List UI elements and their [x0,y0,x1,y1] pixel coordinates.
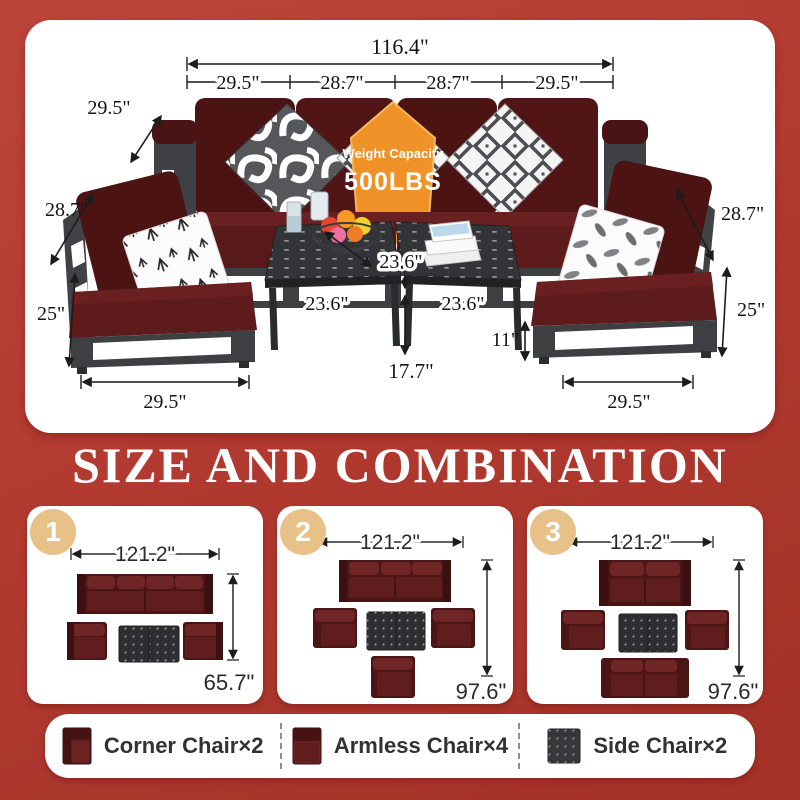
dim-total-width-label: 116.4" [371,34,429,59]
legend-label: Corner Chair×2 [104,733,264,759]
combo-2-left-chair-topview [313,608,357,648]
dim-table-left-label: 23.6" [305,293,348,315]
dim-back-right-label: 28.7" [721,203,764,225]
dim-seat-right-label: 25" [737,299,765,321]
combo-3-depth-label: 97.6" [708,679,759,704]
combination-cards: 1 121.2" [27,506,773,704]
combo-3-bottom-sofa-topview [601,658,689,698]
combo-3-table-topview [619,614,677,652]
dim-table-right-label: 23.6" [441,293,484,315]
combo-1-width-label: 121.2" [115,543,175,566]
badge-line1: Weight Capacity [343,146,445,161]
combo-card-3: 3 121.2" [527,506,763,704]
dim-seat3-label: 28.7" [426,72,469,94]
dim-table-height-label: 17.7" [388,359,433,383]
dimension-sofa-depth: 29.5" [87,97,161,162]
combo-3-width-label: 121.2" [610,531,670,554]
combo-2-depth-label: 97.6" [456,679,507,704]
side-chair-icon [547,728,581,764]
dimension-seat-widths: 29.5" 28.7" 28.7" 29.5" [187,72,613,94]
dimension-total-width: 116.4" [187,34,613,71]
product-infographic: 116.4" 29.5" 28.7" 28.7" 29.5" [0,0,800,800]
dim-seat4-label: 29.5" [535,72,578,94]
combo-1-left-chair-topview [67,622,107,660]
legend-item-side-chair: Side Chair×2 [520,728,755,764]
dimension-chair-width-left: 29.5" [81,375,249,413]
corner-chair-icon [62,727,92,765]
combo-3-number-badge: 3 [530,509,576,555]
dim-seat-left-label: 25" [37,303,65,325]
furniture-scene: 116.4" 29.5" 28.7" 28.7" 29.5" [25,20,775,433]
dim-chair-width-left-label: 29.5" [143,391,186,413]
dimension-seat-height-right: 25" [722,268,765,356]
combo-2-sofa-topview [339,560,451,602]
dimension-scene-card: 116.4" 29.5" 28.7" 28.7" 29.5" [25,20,775,433]
combo-2-bottom-chair-topview [371,656,415,698]
combo-1-number-badge: 1 [30,509,76,555]
combo-2-number-badge: 2 [280,509,326,555]
dim-seat1-label: 29.5" [216,72,259,94]
combo-card-2: 2 121.2" [277,506,513,704]
legend-item-corner-chair: Corner Chair×2 [45,727,280,765]
legend-label: Side Chair×2 [593,733,727,759]
combo-3-sofa-topview [599,560,691,606]
legend-bar: Corner Chair×2 Armless Chair×4 Side Chai… [45,714,755,778]
legend-item-armless-chair: Armless Chair×4 [282,727,517,765]
combo-2-width-label: 121.2" [360,531,420,554]
combo-1-depth-label: 65.7" [204,670,255,695]
dim-seat2-label: 28.7" [320,72,363,94]
combo-1-right-chair-topview [183,622,223,660]
armless-chair-icon [292,727,322,765]
combo-card-1: 1 121.2" [27,506,263,704]
dim-table-depth-label: 23.6" [379,251,422,273]
dim-back-left-label: 28.7" [45,199,88,221]
dim-frame-height-label: 11" [492,329,519,351]
combo-3-left-chair-topview [561,610,605,650]
combo-2-table-topview [367,612,425,650]
combo-1-table-topview [119,626,179,662]
combo-3-right-chair-topview [685,610,729,650]
legend-label: Armless Chair×4 [334,733,508,759]
dim-sofa-depth-label: 29.5" [87,97,130,119]
dimension-chair-width-right: 29.5" [563,375,693,413]
badge-line2: 500LBS [344,168,442,196]
combo-1-sofa-topview [77,574,213,614]
dim-chair-width-right-label: 29.5" [607,391,650,413]
section-title: SIZE AND COMBINATION [0,436,800,494]
combo-2-right-chair-topview [431,608,475,648]
